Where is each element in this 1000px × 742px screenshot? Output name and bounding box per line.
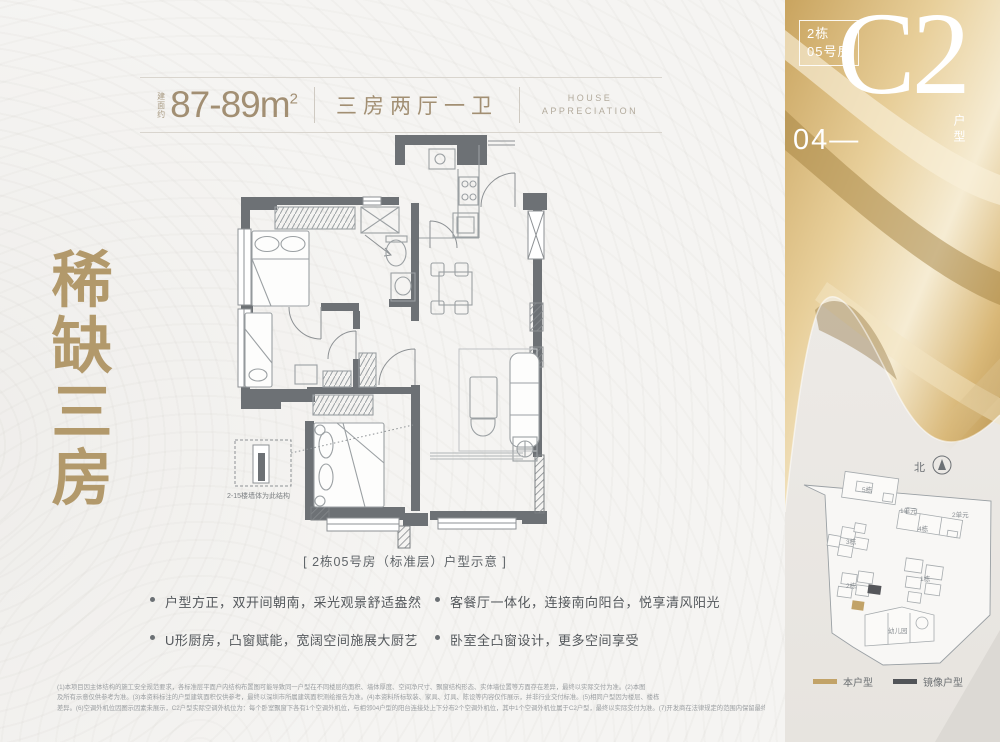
hatched-wall: [535, 455, 544, 513]
bullet-text: 卧室全凸窗设计，更多空间享受: [450, 630, 639, 649]
compass-north-label: 北: [914, 461, 925, 474]
bullet-item: 客餐厅一体化，连接南向阳台，悦享清风阳光: [435, 592, 720, 611]
hatched-wall: [398, 526, 410, 548]
bullet-dot: [435, 597, 440, 602]
area-number: 87-89: [170, 84, 260, 125]
bullet-dot: [150, 597, 155, 602]
hatched-wall: [311, 507, 329, 520]
svg-text:2单元: 2单元: [952, 510, 969, 519]
unit-type-suffix: 户型: [951, 114, 968, 146]
bullet-dot: [150, 635, 155, 640]
svg-text:5栋: 5栋: [862, 485, 873, 494]
mirror-unit-highlight: [867, 584, 881, 595]
area-section: 建面约 87-89m2: [140, 84, 314, 126]
area-superscript: 2: [290, 91, 297, 108]
legend-label: 镜像户型: [923, 674, 963, 689]
floorplan-drawing: 2-15楼墙体为此结构: [225, 133, 585, 557]
siteplan-drawing: 北: [800, 443, 995, 678]
bullet-text: 户型方正，双开间朝南，采光观景舒适盎然: [165, 592, 422, 611]
layout-label: 三房两厅一卫: [315, 90, 519, 120]
area-unit: m: [260, 84, 290, 125]
this-unit-swatch: [813, 679, 837, 684]
compass: 北: [914, 456, 951, 474]
plan-caption: [ 2栋05号房（标准层）户型示意 ]: [225, 551, 585, 570]
title-char: 房: [46, 445, 118, 511]
bullet-item: 户型方正，双开间朝南，采光观景舒适盎然: [150, 592, 435, 611]
siteplan-legend: 本户型 镜像户型: [813, 674, 963, 689]
plan-walls: [241, 135, 547, 526]
house-appreciation-label: HOUSE APPRECIATION: [520, 92, 660, 118]
title-char: 稀: [46, 247, 118, 313]
bullet-text: 客餐厅一体化，连接南向阳台，悦享清风阳光: [450, 592, 720, 611]
legend-item-this-unit: 本户型: [813, 674, 873, 689]
bullet-dot: [435, 635, 440, 640]
disclaimer-line: 差异。(6)空调外机位因图示因素未展示，C2户型实际空调外机位为：每个卧室飘窗下…: [57, 704, 765, 714]
bullet-item: 卧室全凸窗设计，更多空间享受: [435, 630, 720, 649]
unit-type-code: C2: [837, 0, 967, 122]
disclaimer-line: 及所有示意仅供参考为准。(3)本资料标注的户型建筑面积仅供参考，最终以深圳市所属…: [57, 693, 765, 703]
svg-text:1单元: 1单元: [900, 506, 917, 515]
house-word: HOUSE: [520, 92, 660, 105]
gold-panel: 2栋 05号房 04— C2 户型 北: [785, 0, 1000, 742]
legend-label: 本户型: [843, 674, 873, 689]
side-title: 稀 缺 三 房: [46, 247, 118, 511]
structure-note-text: 2-15楼墙体为此结构: [227, 491, 290, 500]
legend-item-mirror-unit: 镜像户型: [893, 674, 963, 689]
poster-page: 建面约 87-89m2 三房两厅一卫 HOUSE APPRECIATION 稀 …: [0, 0, 1000, 742]
appreciation-word: APPRECIATION: [520, 105, 660, 118]
this-unit-highlight: [851, 600, 864, 611]
svg-text:1栋: 1栋: [920, 574, 931, 583]
floor-number: 04—: [793, 124, 860, 157]
compass-arrow-icon: [938, 459, 946, 470]
svg-text:4栋: 4栋: [918, 524, 929, 533]
area-approx-label: 建面约: [157, 92, 166, 119]
svg-text:3栋: 3栋: [846, 537, 857, 546]
svg-text:2栋: 2栋: [846, 581, 857, 590]
title-char: 缺: [46, 313, 118, 379]
svg-text:幼儿园: 幼儿园: [888, 626, 908, 635]
mirror-unit-swatch: [893, 679, 917, 684]
bullet-item: U形厨房，凸窗赋能，宽阔空间施展大厨艺: [150, 630, 435, 649]
bullet-text: U形厨房，凸窗赋能，宽阔空间施展大厨艺: [165, 630, 418, 649]
disclaimer-line: (1)本项目因主体结构的施工安全规范要求，各标准层平面户内结构布置图可能导致同一…: [57, 683, 765, 693]
disclaimer: (1)本项目因主体结构的施工安全规范要求，各标准层平面户内结构布置图可能导致同一…: [57, 683, 765, 714]
selling-points: 户型方正，双开间朝南，采光观景舒适盎然 U形厨房，凸窗赋能，宽阔空间施展大厨艺 …: [150, 592, 720, 649]
title-char: 三: [46, 379, 118, 445]
header-band: 建面约 87-89m2 三房两厅一卫 HOUSE APPRECIATION: [140, 77, 662, 133]
area-value: 87-89m2: [170, 84, 297, 126]
